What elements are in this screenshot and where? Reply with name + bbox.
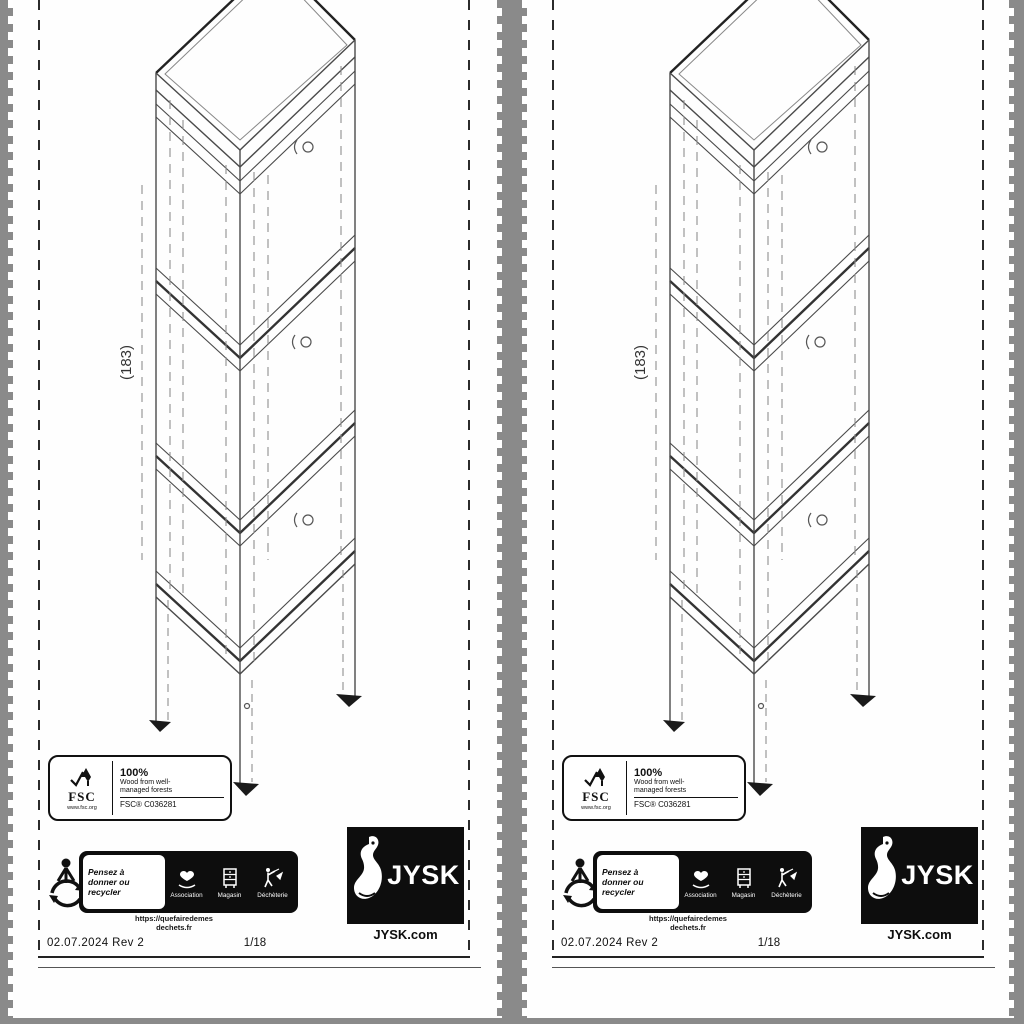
fsc-tree-check-icon (69, 765, 95, 789)
recycling-headline: Pensez à donner ou recycler (597, 855, 679, 909)
jysk-goose-icon (863, 831, 901, 921)
fsc-label: FSC www.fsc.org 100% Wood from well- man… (48, 755, 232, 821)
footer-rule-secondary (552, 967, 995, 968)
recycling-banner: Pensez à donner ou recycler Association … (593, 851, 812, 913)
binding-strip-right (1009, 0, 1024, 1024)
fsc-tree-check-icon (583, 765, 609, 789)
fsc-desc-line2: managed forests (120, 787, 224, 795)
channel-decheterie: Déchèterie (251, 855, 294, 909)
manual-scan: (183) FSC www.fsc.org 100% Wood from wel… (0, 0, 1024, 1024)
recycling-headline: Pensez à donner ou recycler (83, 855, 165, 909)
fsc-cert-code: FSC® C036281 (120, 797, 224, 809)
recycling-url: https://quefairedemes dechets.fr (593, 914, 783, 932)
store-icon (732, 866, 756, 890)
page-number: 1/18 (527, 937, 1011, 949)
channel-association: Association (165, 855, 208, 909)
footer-rule (552, 956, 984, 958)
recycling-url: https://quefairedemes dechets.fr (79, 914, 269, 932)
footer-rule (38, 956, 470, 958)
channel-magasin: Magasin (208, 855, 251, 909)
brand-name: JYSK (387, 860, 460, 891)
association-icon (175, 866, 199, 890)
fsc-logo-text: FSC (582, 789, 610, 805)
manual-page-right: (183) FSC www.fsc.org 100% Wood from wel… (527, 0, 1009, 1018)
footer-rule-secondary (38, 967, 481, 968)
association-icon (689, 866, 713, 890)
channel-decheterie: Déchèterie (765, 855, 808, 909)
dimension-label: (183) (632, 345, 649, 380)
fsc-url: www.fsc.org (581, 805, 611, 811)
fsc-cert-code: FSC® C036281 (634, 797, 738, 809)
fsc-desc-line2: managed forests (634, 787, 738, 795)
fsc-percent: 100% (634, 767, 738, 780)
binding-strip-bottom (0, 1018, 1024, 1024)
binding-strip-middle (497, 0, 527, 1024)
fsc-desc-line1: Wood from well- (120, 779, 224, 787)
brand-logo: JYSK (347, 827, 464, 924)
cabinet-drawing: (183) (13, 0, 497, 810)
channel-association: Association (679, 855, 722, 909)
fsc-percent: 100% (120, 767, 224, 780)
brand-name: JYSK (901, 860, 974, 891)
dimension-label: (183) (118, 345, 135, 380)
fsc-url: www.fsc.org (67, 805, 97, 811)
binding-strip-left (0, 0, 13, 1024)
brand-logo: JYSK (861, 827, 978, 924)
fsc-logo-text: FSC (68, 789, 96, 805)
recycling-center-icon (261, 866, 285, 890)
recycling-center-icon (775, 866, 799, 890)
page-number: 1/18 (13, 937, 497, 949)
fsc-label: FSC www.fsc.org 100% Wood from well- man… (562, 755, 746, 821)
cabinet-drawing: (183) (527, 0, 1011, 810)
fsc-desc-line1: Wood from well- (634, 779, 738, 787)
store-icon (218, 866, 242, 890)
recycling-banner: Pensez à donner ou recycler Association … (79, 851, 298, 913)
manual-page-left: (183) FSC www.fsc.org 100% Wood from wel… (13, 0, 497, 1018)
jysk-goose-icon (349, 831, 387, 921)
channel-magasin: Magasin (722, 855, 765, 909)
